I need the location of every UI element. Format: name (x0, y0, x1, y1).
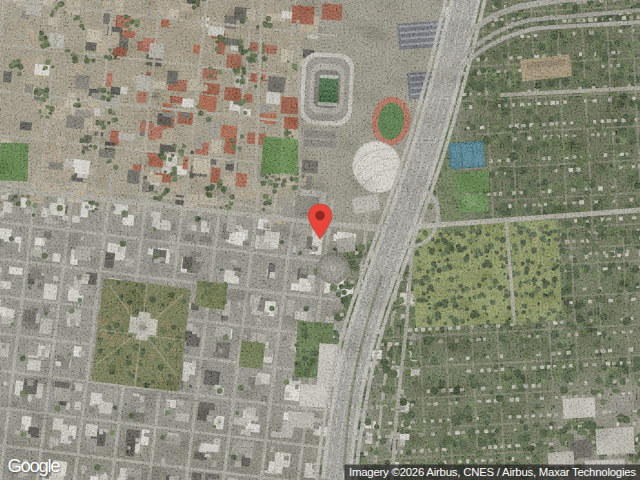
svg-text:Google: Google (8, 455, 61, 476)
svg-text:Imagery ©2026 Airbus, CNES / A: Imagery ©2026 Airbus, CNES / Airbus, Max… (349, 466, 636, 478)
